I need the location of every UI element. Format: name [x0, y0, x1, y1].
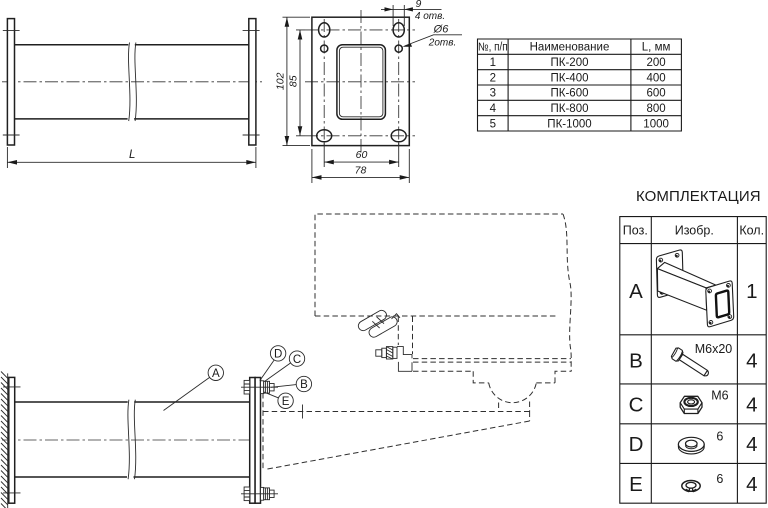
svg-text:Кол.: Кол.	[739, 224, 764, 238]
svg-text:6: 6	[716, 430, 723, 444]
svg-text:ПК-800: ПК-800	[551, 103, 589, 115]
svg-text:E: E	[282, 396, 290, 408]
svg-text:102: 102	[275, 72, 287, 90]
svg-text:Наименование: Наименование	[530, 42, 610, 54]
svg-text:1: 1	[746, 280, 757, 303]
svg-text:3: 3	[490, 88, 496, 100]
svg-text:9: 9	[416, 0, 422, 10]
svg-text:D: D	[274, 349, 282, 361]
svg-text:85: 85	[288, 75, 300, 87]
svg-text:C: C	[293, 354, 301, 366]
svg-text:A: A	[212, 368, 220, 380]
svg-text:ПК-400: ПК-400	[551, 72, 589, 84]
svg-text:ПК-1000: ПК-1000	[547, 118, 591, 130]
svg-text:1000: 1000	[643, 118, 669, 130]
svg-text:800: 800	[647, 103, 666, 115]
svg-text:4: 4	[746, 433, 757, 456]
svg-text:4: 4	[746, 393, 757, 416]
svg-text:5: 5	[490, 118, 496, 130]
svg-text:4 отв.: 4 отв.	[415, 11, 445, 22]
svg-text:D: D	[629, 433, 644, 456]
svg-text:L: L	[129, 149, 135, 161]
svg-text:4: 4	[746, 350, 757, 373]
svg-text:ПК-600: ПК-600	[551, 88, 589, 100]
svg-text:E: E	[629, 473, 643, 496]
svg-text:M6x20: M6x20	[695, 342, 733, 356]
svg-text:1: 1	[490, 57, 496, 69]
svg-text:№, п/п: №, п/п	[478, 42, 508, 54]
svg-text:C: C	[629, 393, 644, 416]
svg-text:200: 200	[647, 57, 666, 69]
svg-text:600: 600	[647, 88, 666, 100]
svg-text:Поз.: Поз.	[623, 224, 648, 238]
svg-text:M6: M6	[711, 389, 728, 403]
svg-text:78: 78	[355, 164, 367, 176]
svg-text:A: A	[629, 280, 643, 303]
svg-text:6: 6	[716, 472, 723, 486]
svg-text:4: 4	[490, 103, 497, 115]
svg-text:2: 2	[490, 72, 496, 84]
svg-text:B: B	[629, 350, 643, 373]
svg-text:ПК-200: ПК-200	[551, 57, 589, 69]
svg-text:L, мм: L, мм	[642, 42, 671, 54]
svg-text:B: B	[300, 379, 308, 391]
svg-text:2отв.: 2отв.	[428, 37, 456, 48]
svg-text:400: 400	[647, 72, 666, 84]
svg-text:КОМПЛЕКТАЦИЯ: КОМПЛЕКТАЦИЯ	[636, 188, 761, 205]
svg-text:Изобр.: Изобр.	[675, 224, 714, 238]
svg-text:4: 4	[746, 473, 757, 496]
svg-text:60: 60	[356, 149, 368, 161]
svg-text:Ø6: Ø6	[433, 23, 450, 35]
